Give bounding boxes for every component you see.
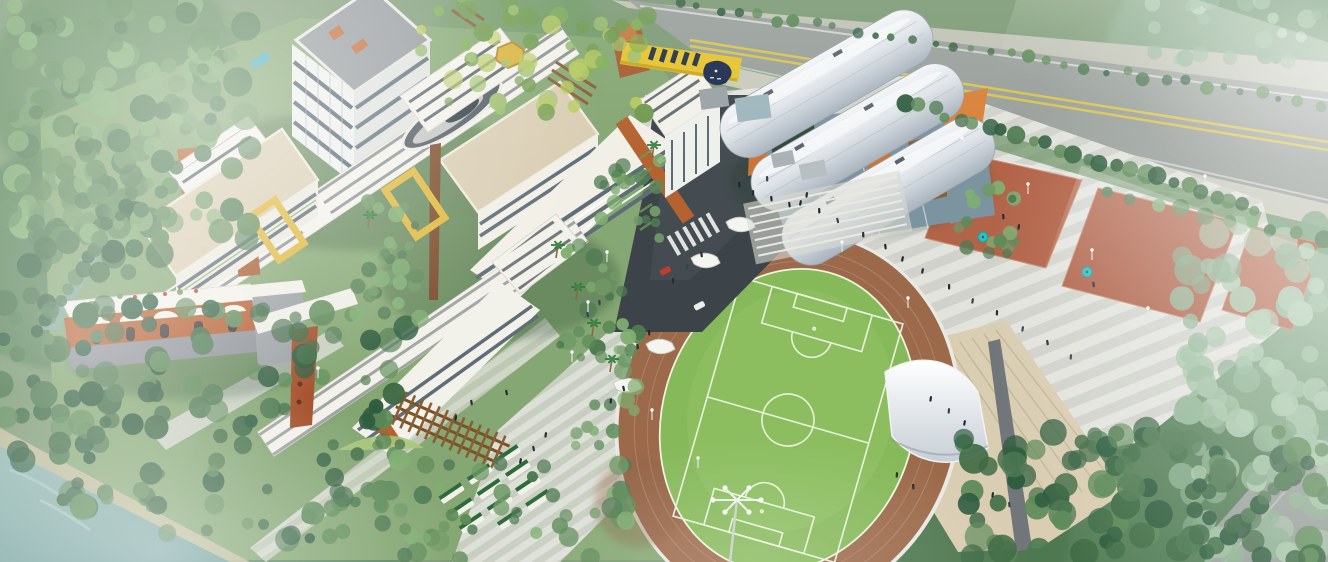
campus-scene — [0, 0, 1328, 562]
aerial-rendering — [0, 0, 1328, 562]
